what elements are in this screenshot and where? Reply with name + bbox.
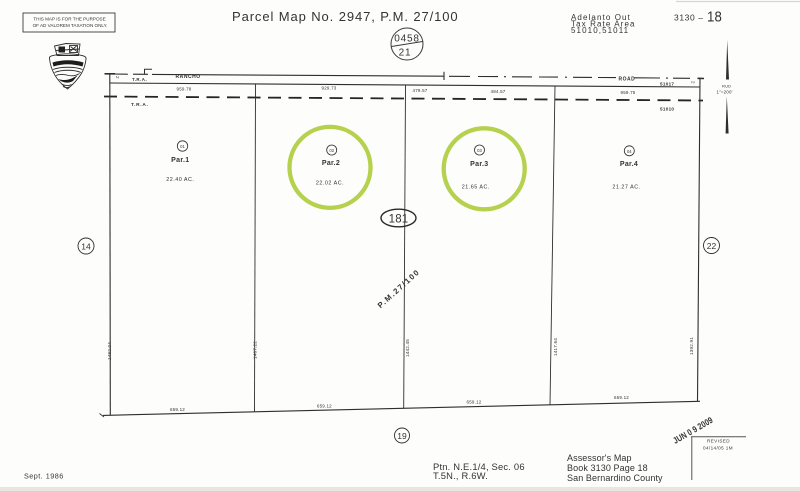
svg-text:659.12: 659.12 [467, 399, 482, 404]
svg-text:14: 14 [81, 241, 91, 251]
svg-text:01: 01 [180, 144, 185, 149]
svg-text:San Bernardino County: San Bernardino County [567, 473, 663, 483]
svg-text:659.12: 659.12 [317, 403, 332, 408]
svg-text:Book 3130 Page 18: Book 3130 Page 18 [567, 463, 648, 473]
svg-text:T.R.A.: T.R.A. [132, 77, 147, 82]
svg-text:1482.04: 1482.04 [107, 342, 112, 360]
svg-text:51017: 51017 [660, 82, 674, 87]
svg-text:T.5N., R.6W.: T.5N., R.6W. [433, 470, 488, 481]
svg-text:659.12: 659.12 [170, 407, 185, 412]
svg-text:OF AD VALOREM TAXATION ONLY.: OF AD VALOREM TAXATION ONLY. [33, 23, 108, 28]
svg-text:3130 –: 3130 – [674, 13, 704, 23]
svg-text:Sept. 1986: Sept. 1986 [24, 472, 64, 481]
svg-text:RANCHO: RANCHO [176, 74, 201, 80]
svg-text:Par.4: Par.4 [620, 161, 638, 168]
svg-text:1392.91: 1392.91 [689, 337, 694, 355]
svg-text:21.65 AC.: 21.65 AC. [462, 185, 490, 191]
svg-text:T.R.A.: T.R.A. [131, 102, 149, 108]
svg-text:04: 04 [627, 149, 632, 154]
svg-text:959.78: 959.78 [177, 86, 192, 91]
svg-text:1467.22: 1467.22 [253, 341, 258, 359]
svg-text:RUD: RUD [722, 84, 731, 89]
svg-text:1417.64: 1417.64 [553, 338, 558, 356]
svg-text:21.27 AC.: 21.27 AC. [612, 185, 640, 191]
svg-text:Assessor's Map: Assessor's Map [567, 453, 632, 463]
svg-text:0458: 0458 [394, 34, 419, 45]
svg-text:19: 19 [397, 431, 407, 441]
svg-text:REVISED: REVISED [707, 439, 730, 444]
svg-text:ROAD: ROAD [619, 77, 636, 83]
svg-text:02: 02 [329, 148, 334, 153]
svg-text:Parcel Map No. 2947, P.M. 27/1: Parcel Map No. 2947, P.M. 27/100 [232, 9, 459, 24]
svg-text:51010: 51010 [660, 106, 674, 111]
svg-text:51010,51011: 51010,51011 [571, 26, 629, 35]
svg-text:Par.2: Par.2 [322, 160, 340, 167]
svg-text:484.57: 484.57 [491, 89, 506, 94]
svg-text:1"=200': 1"=200' [717, 90, 733, 95]
svg-text:659.12: 659.12 [614, 395, 629, 400]
svg-text:04/14/05 1M: 04/14/05 1M [703, 445, 733, 450]
svg-text:18: 18 [707, 7, 722, 24]
svg-text:21: 21 [399, 48, 412, 59]
svg-text:22.02 AC.: 22.02 AC. [316, 180, 344, 186]
svg-text:Par.3: Par.3 [470, 161, 488, 168]
svg-text:Par.1: Par.1 [171, 157, 189, 164]
svg-text:959.75: 959.75 [621, 90, 636, 95]
svg-text:THIS MAP IS FOR THE PURPOSE: THIS MAP IS FOR THE PURPOSE [33, 16, 105, 21]
svg-text:479.57: 479.57 [413, 88, 428, 93]
svg-text:1442.45: 1442.45 [405, 339, 410, 357]
svg-text:03: 03 [477, 148, 482, 153]
svg-text:22.40 AC.: 22.40 AC. [166, 177, 194, 183]
svg-text:181: 181 [389, 214, 409, 226]
svg-text:22: 22 [707, 241, 717, 251]
svg-text:929.73: 929.73 [322, 86, 337, 91]
